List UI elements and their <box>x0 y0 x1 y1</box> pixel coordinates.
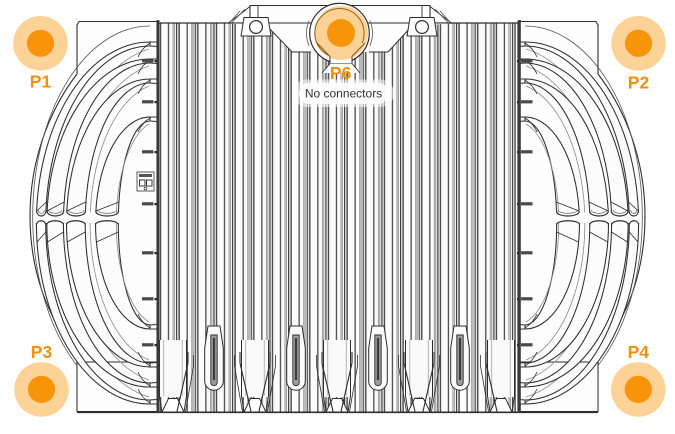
svg-text:P3: P3 <box>31 342 53 362</box>
svg-text:No connectors: No connectors <box>305 86 382 100</box>
svg-text:P1: P1 <box>30 72 52 92</box>
svg-text:P2: P2 <box>628 73 650 93</box>
svg-text:P4: P4 <box>628 342 650 362</box>
